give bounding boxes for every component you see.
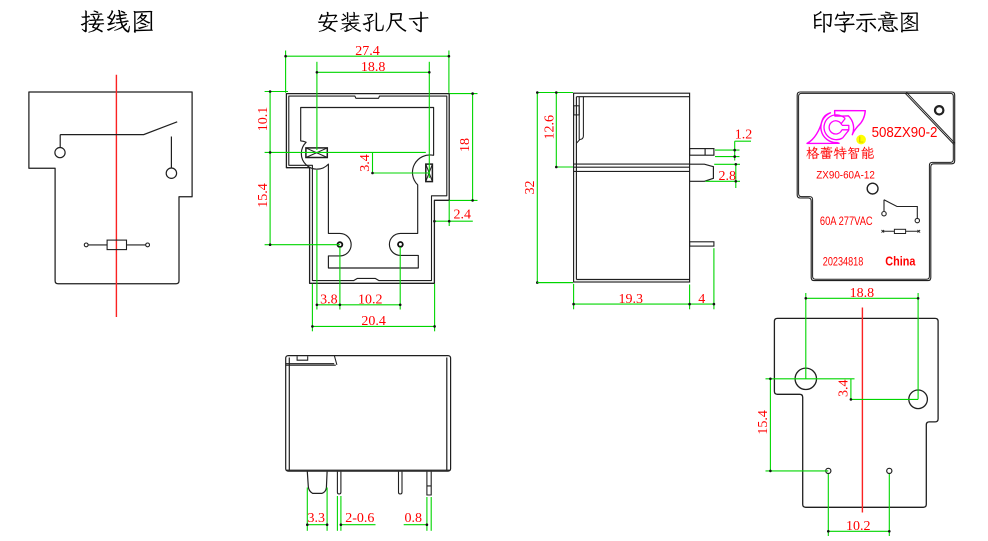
- svg-text:18: 18: [458, 138, 473, 152]
- svg-text:3.3: 3.3: [308, 511, 326, 526]
- svg-text:10.2: 10.2: [846, 519, 871, 534]
- svg-text:3.8: 3.8: [320, 292, 338, 307]
- svg-text:3.4: 3.4: [837, 380, 852, 398]
- svg-text:10.1: 10.1: [256, 107, 271, 132]
- svg-text:L: L: [859, 136, 864, 145]
- svg-text:4: 4: [698, 292, 705, 307]
- svg-text:32: 32: [523, 181, 538, 195]
- svg-text:15.4: 15.4: [256, 183, 271, 208]
- svg-text:20.4: 20.4: [361, 314, 386, 329]
- svg-text:2-0.6: 2-0.6: [345, 511, 374, 526]
- svg-text:ZX90-60A-12: ZX90-60A-12: [816, 169, 875, 181]
- svg-text:2.4: 2.4: [454, 208, 472, 223]
- svg-text:18.8: 18.8: [361, 60, 386, 75]
- svg-text:508ZX90-2: 508ZX90-2: [872, 125, 938, 141]
- svg-text:60A 277VAC: 60A 277VAC: [820, 216, 873, 228]
- svg-text:1.2: 1.2: [735, 128, 753, 143]
- svg-text:2.8: 2.8: [718, 169, 736, 184]
- svg-text:0.8: 0.8: [405, 511, 423, 526]
- svg-text:19.3: 19.3: [619, 292, 644, 307]
- svg-text:China: China: [885, 254, 916, 269]
- svg-text:12.6: 12.6: [542, 115, 557, 140]
- svg-text:18.8: 18.8: [850, 286, 875, 301]
- svg-text:15.4: 15.4: [756, 410, 771, 435]
- svg-text:10.2: 10.2: [358, 292, 383, 307]
- svg-text:27.4: 27.4: [355, 44, 380, 59]
- svg-text:3.4: 3.4: [358, 154, 373, 172]
- svg-text:20234818: 20234818: [823, 257, 864, 269]
